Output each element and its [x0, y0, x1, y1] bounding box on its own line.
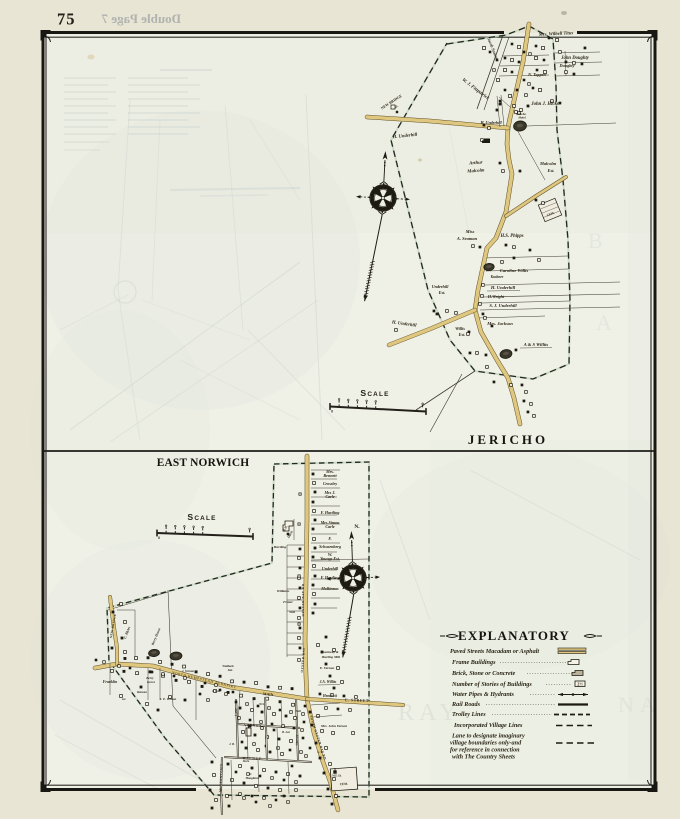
- svg-text:Frame Buildings: Frame Buildings: [452, 659, 496, 666]
- svg-text:J. Vernon: J. Vernon: [182, 669, 194, 673]
- svg-text:OYSTER BAY RD: OYSTER BAY RD: [301, 583, 305, 616]
- svg-text:Arthur: Arthur: [468, 161, 483, 167]
- svg-text:Doughty: Doughty: [559, 63, 575, 68]
- svg-text:Mrs. Jackson: Mrs. Jackson: [486, 321, 513, 326]
- svg-text:Brick, Stone or Concrete: Brick, Stone or Concrete: [451, 670, 516, 677]
- svg-text:Caroline Willis: Caroline Willis: [500, 268, 529, 273]
- svg-text:EAST NORWICH: EAST NORWICH: [157, 457, 250, 469]
- svg-text:A: A: [596, 310, 612, 335]
- svg-text:Double Page 7: Double Page 7: [101, 11, 181, 26]
- svg-text:Paved Streets Macadam or Aspha: Paved Streets Macadam or Asphalt: [450, 648, 539, 655]
- svg-text:Malcolm: Malcolm: [539, 161, 557, 166]
- svg-text:Underhill: Underhill: [322, 566, 339, 571]
- svg-text:Hoagland: Hoagland: [244, 776, 259, 780]
- svg-text:JERICHO: JERICHO: [468, 432, 548, 447]
- svg-text:Carle: Carle: [325, 524, 335, 529]
- svg-text:Inn: Inn: [227, 668, 233, 672]
- svg-text:E. STREET: E. STREET: [345, 698, 369, 703]
- svg-text:Miss: Miss: [465, 229, 475, 234]
- svg-text:Est.: Est.: [438, 290, 446, 295]
- svg-text:75: 75: [57, 10, 76, 29]
- svg-text:A & S Willits: A & S Willits: [523, 342, 549, 347]
- svg-text:est.: est.: [122, 697, 126, 701]
- svg-text:Mrs. John Vernon: Mrs. John Vernon: [320, 724, 347, 728]
- svg-text:M.E.Ch.: M.E.Ch.: [332, 775, 342, 778]
- svg-text:H.Wright: H.Wright: [487, 294, 505, 299]
- svg-text:A. Seaman: A. Seaman: [456, 236, 478, 241]
- svg-text:E. Vernon: E. Vernon: [319, 666, 335, 670]
- svg-text:Kushner: Kushner: [490, 275, 504, 279]
- svg-text:Carle: Carle: [325, 494, 335, 499]
- svg-text:H. Underhill: H. Underhill: [479, 120, 502, 125]
- svg-text:Vail: Vail: [289, 610, 295, 614]
- svg-text:Incorporated Village Lines: Incorporated Village Lines: [453, 722, 523, 729]
- svg-text:Hendrick: Hendrick: [322, 694, 337, 698]
- svg-text:Est.: Est.: [547, 168, 555, 173]
- svg-text:Grove: Grove: [147, 680, 156, 684]
- svg-text:with The Country Sheets: with The Country Sheets: [452, 754, 516, 761]
- svg-text:Burling Mill: Burling Mill: [321, 655, 340, 659]
- svg-text:F.: F.: [328, 536, 331, 541]
- svg-text:Bennett: Bennett: [322, 473, 337, 478]
- svg-text:Underhill: Underhill: [432, 284, 450, 289]
- svg-text:J. E. Vernon: J. E. Vernon: [160, 697, 177, 701]
- svg-text:Est.: Est.: [458, 332, 466, 337]
- svg-text:J.A. Willits: J.A. Willits: [320, 680, 337, 684]
- svg-text:Trolley Lines: Trolley Lines: [452, 711, 486, 718]
- svg-text:Williams: Williams: [277, 589, 290, 593]
- svg-text:LANE: LANE: [234, 708, 238, 717]
- svg-text:W.S.: W.S.: [259, 702, 265, 706]
- svg-text:T. Cox: T. Cox: [212, 689, 221, 693]
- svg-text:Willis: Willis: [455, 326, 465, 331]
- svg-text:Water Pipes & Hydrants: Water Pipes & Hydrants: [452, 691, 515, 698]
- svg-text:village boundaries only-and: village boundaries only-and: [450, 740, 522, 747]
- svg-text:Store: Store: [243, 759, 250, 763]
- svg-text:J. B.: J. B.: [229, 742, 235, 746]
- svg-text:N.: N.: [354, 524, 360, 530]
- svg-text:S. Y.: S. Y.: [317, 750, 323, 754]
- svg-text:Journeay &: Journeay &: [321, 650, 338, 654]
- svg-text:N. Tappen: N. Tappen: [527, 72, 546, 77]
- svg-text:Hartling: Hartling: [273, 545, 287, 549]
- svg-text:John J. Hicks: John J. Hicks: [530, 102, 559, 107]
- svg-text:Remsen: Remsen: [137, 690, 147, 694]
- svg-text:John Doughty: John Doughty: [560, 56, 590, 61]
- svg-text:S. J. Underhill: S. J. Underhill: [489, 303, 517, 308]
- svg-text:Hall: Hall: [294, 709, 301, 713]
- svg-text:2½: 2½: [577, 682, 583, 687]
- svg-text:F. Hartling: F. Hartling: [321, 510, 340, 515]
- svg-text:Schusenberg: Schusenberg: [319, 544, 341, 549]
- svg-text:Youngs Est.: Youngs Est.: [320, 556, 340, 561]
- svg-text:Rail Roads: Rail Roads: [451, 701, 481, 708]
- svg-text:Frazer: Frazer: [283, 600, 293, 604]
- svg-text:B: B: [588, 228, 603, 253]
- svg-text:Mollineux: Mollineux: [320, 586, 339, 591]
- svg-text:H. Underhill: H. Underhill: [490, 285, 516, 290]
- svg-text:Number of Stories of Buildings: Number of Stories of Buildings: [451, 681, 532, 688]
- svg-text:GROVE: GROVE: [295, 734, 300, 745]
- svg-text:B. Lee: B. Lee: [281, 730, 291, 734]
- svg-text:H.S. Phipps: H.S. Phipps: [499, 234, 523, 239]
- svg-text:for reference in connection: for reference in connection: [450, 747, 520, 754]
- svg-text:EXPLANATORY: EXPLANATORY: [458, 628, 570, 643]
- svg-text:Lane to designate imaginary: Lane to designate imaginary: [451, 733, 525, 740]
- svg-text:CEM.: CEM.: [340, 782, 349, 787]
- svg-text:Hotel: Hotel: [517, 116, 525, 120]
- svg-text:Crossley: Crossley: [323, 481, 338, 486]
